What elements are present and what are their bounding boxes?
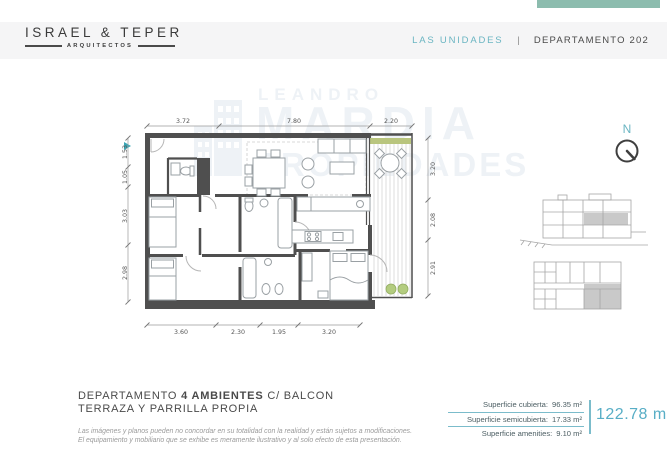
dim-bottom-1: 3.60	[174, 329, 188, 336]
brand-tagline-row: ARQUITECTOS	[25, 43, 175, 49]
disclaimer-line2: El equipamiento y mobiliario que se exhi…	[78, 436, 412, 445]
highlighted-unit-keyplan	[584, 284, 621, 309]
nav-departamento-202[interactable]: DEPARTAMENTO 202	[534, 35, 649, 46]
brand-logo[interactable]: ISRAEL & TEPER ARQUITECTOS	[25, 25, 175, 49]
unit-title-line2: TERRAZA Y PARRILLA PROPIA	[78, 403, 334, 416]
area-value: 96.35 m²	[552, 400, 582, 409]
surface-areas-table: Superficie cubierta: 96.35 m² Superficie…	[448, 398, 584, 441]
header-band: ISRAEL & TEPER ARQUITECTOS LAS UNIDADES …	[0, 22, 667, 59]
total-area-value: 122.78 m²	[596, 406, 667, 424]
area-label: Superficie semicubierta:	[467, 415, 548, 424]
highlighted-unit-section	[584, 213, 628, 225]
header-nav: LAS UNIDADES | DEPARTAMENTO 202	[412, 22, 649, 59]
unit-title: DEPARTAMENTO 4 AMBIENTES C/ BALCON TERRA…	[78, 390, 334, 416]
title-balcon: C/ BALCON	[267, 390, 334, 402]
dim-right-2: 2.08	[430, 213, 437, 227]
unit-title-line1: DEPARTAMENTO 4 AMBIENTES C/ BALCON	[78, 390, 334, 403]
floor-plan: 3.72 7.80 2.20 3.60 2.30 1.95 3.20 1.53 …	[105, 105, 450, 350]
dim-left-1: 1.53	[122, 145, 129, 159]
furniture	[149, 139, 406, 300]
dim-right-1: 3.20	[430, 162, 437, 176]
dim-left-2: 1.05	[122, 170, 129, 184]
dim-left-3: 3.03	[122, 209, 129, 223]
top-accent-bar	[537, 0, 660, 8]
nav-separator: |	[517, 35, 519, 46]
area-value: 17.33 m²	[552, 415, 582, 424]
planter-strip	[370, 138, 411, 144]
compass-label: N	[623, 122, 632, 136]
nav-las-unidades[interactable]: LAS UNIDADES	[412, 35, 503, 46]
area-row-cubierta: Superficie cubierta: 96.35 m²	[448, 398, 584, 413]
dim-bottom-4: 3.20	[322, 329, 336, 336]
brochure-page: ISRAEL & TEPER ARQUITECTOS LAS UNIDADES …	[0, 0, 667, 450]
brand-tagline: ARQUITECTOS	[67, 43, 133, 49]
tagline-rule-right	[138, 45, 175, 47]
dim-top-1: 3.72	[176, 118, 190, 125]
dim-top-2: 7.80	[287, 118, 301, 125]
brand-name: ISRAEL & TEPER	[25, 25, 175, 40]
tagline-rule-left	[25, 45, 62, 47]
area-row-amenities: Superficie amenities: 9.10 m²	[448, 427, 584, 441]
north-compass-icon: N	[600, 115, 655, 175]
area-label: Superficie cubierta:	[483, 400, 548, 409]
disclaimer: Las imágenes y planos pueden no concorda…	[78, 427, 412, 445]
planter-pot	[386, 284, 396, 294]
closet-block	[197, 158, 210, 195]
area-value: 9.10 m²	[556, 429, 582, 438]
dim-bottom-3: 1.95	[272, 329, 286, 336]
disclaimer-line1: Las imágenes y planos pueden no concorda…	[78, 427, 412, 436]
dim-bottom-2: 2.30	[231, 329, 245, 336]
dim-right-3: 2.91	[430, 261, 437, 275]
dim-left-4: 2.98	[122, 266, 129, 280]
title-ambientes: 4 AMBIENTES	[181, 390, 263, 402]
total-divider	[589, 400, 591, 434]
planter-pot	[398, 284, 408, 294]
bottom-wall	[145, 300, 375, 309]
building-section-diagram	[518, 188, 648, 254]
dim-top-3: 2.20	[384, 118, 398, 125]
area-row-semicubierta: Superficie semicubierta: 17.33 m²	[448, 413, 584, 428]
key-plan-diagram	[526, 256, 631, 314]
area-label: Superficie amenities:	[482, 429, 553, 438]
title-departamento: DEPARTAMENTO	[78, 390, 177, 402]
